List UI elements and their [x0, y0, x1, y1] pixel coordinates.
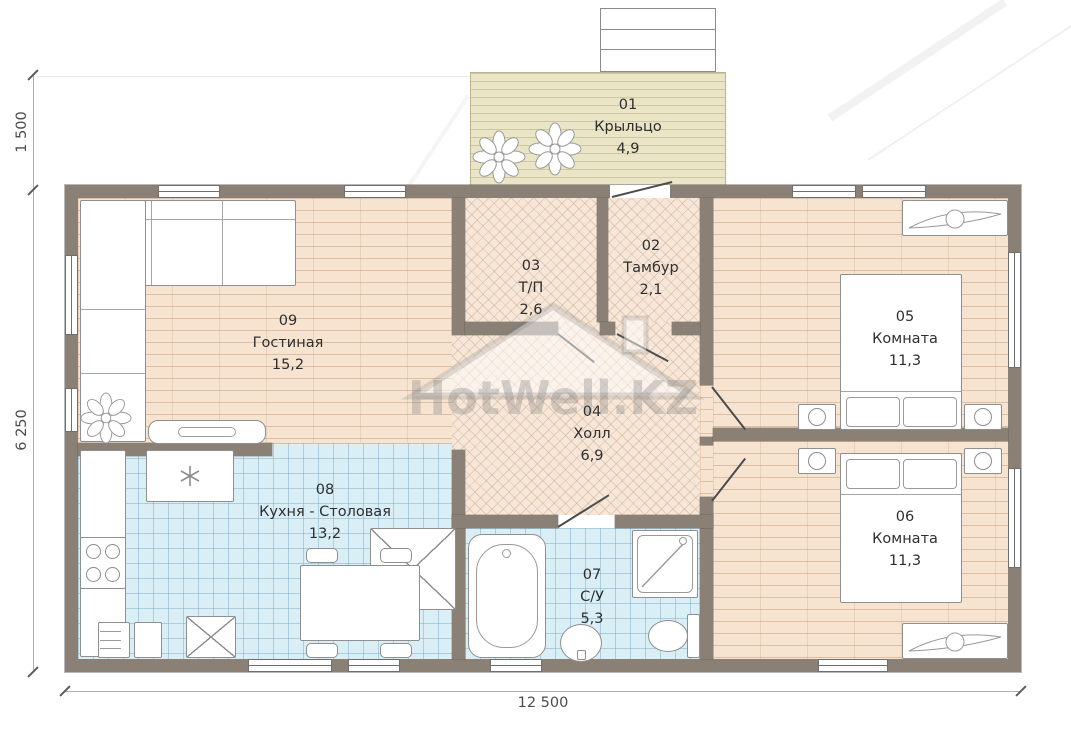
- window: [348, 659, 400, 672]
- stove: [80, 537, 126, 589]
- room-number: 04: [573, 401, 610, 423]
- room-name: Кухня - Столовая: [259, 501, 391, 523]
- window: [344, 185, 406, 198]
- chair: [306, 548, 338, 563]
- room-area: 11,3: [872, 550, 938, 572]
- kitchen-cabinet: [134, 622, 162, 658]
- dimension-label-12500: 12 500: [518, 695, 569, 711]
- room-area: 2,1: [623, 279, 678, 301]
- desk: [902, 623, 1008, 659]
- room-number: 02: [623, 235, 678, 257]
- window: [818, 659, 888, 672]
- room-area: 11,3: [872, 350, 938, 372]
- window: [158, 185, 220, 198]
- pillow: [903, 397, 957, 427]
- chair: [306, 643, 338, 658]
- decor-leaf-icon: [905, 627, 1005, 657]
- window: [248, 659, 332, 672]
- shower-diagonal: [633, 531, 696, 596]
- washbasin-tap: [577, 650, 586, 660]
- lamp-icon: [974, 408, 992, 426]
- dining-table: [300, 565, 420, 641]
- wall: [465, 322, 558, 335]
- blanket-fold: [841, 494, 961, 495]
- nightstand: [964, 404, 1002, 430]
- chair: [380, 643, 412, 658]
- room-area: 5,3: [580, 608, 604, 630]
- kitchen-drawers: [98, 622, 130, 658]
- room-area: 6,9: [573, 445, 610, 467]
- shower-cabin: [632, 530, 698, 598]
- desk: [902, 200, 1008, 236]
- room-label-bathroom: 07 С/У 5,3: [580, 564, 604, 630]
- room-area: 15,2: [253, 354, 324, 376]
- room-number: 09: [253, 310, 324, 332]
- room-area: 13,2: [259, 523, 391, 545]
- burner-icon: [105, 544, 120, 559]
- room-name: Тамбур: [623, 257, 678, 279]
- lamp-icon: [808, 452, 826, 470]
- bathtub-basin: [476, 544, 538, 648]
- room-number: 01: [594, 94, 662, 116]
- window: [862, 185, 926, 198]
- room-name: Комната: [872, 528, 938, 550]
- window: [65, 388, 78, 432]
- room-label-living: 09 Гостиная 15,2: [253, 310, 324, 376]
- burner-icon: [105, 567, 120, 582]
- wall: [700, 437, 713, 445]
- wall: [615, 515, 713, 528]
- wall: [672, 322, 700, 335]
- burner-icon: [86, 544, 101, 559]
- room-number: 08: [259, 479, 391, 501]
- kitchen-sink-counter: [146, 450, 234, 502]
- room-number: 06: [872, 506, 938, 528]
- wall: [597, 198, 608, 322]
- window: [65, 255, 78, 335]
- room-label-kitchen: 08 Кухня - Столовая 13,2: [259, 479, 391, 545]
- extension-line: [38, 76, 470, 77]
- door-threshold: [700, 385, 713, 437]
- chair: [380, 548, 412, 563]
- dishwasher: [186, 616, 236, 658]
- nightstand: [798, 404, 836, 430]
- lamp-icon: [974, 452, 992, 470]
- bathtub: [468, 534, 546, 658]
- room-name: С/У: [580, 586, 604, 608]
- nightstand: [964, 448, 1002, 474]
- room-name: Т/П: [519, 277, 544, 299]
- window: [490, 659, 542, 672]
- burner-icon: [86, 567, 101, 582]
- drain-icon: [502, 549, 511, 558]
- room-name: Гостиная: [253, 332, 324, 354]
- nightstand: [798, 448, 836, 474]
- wall: [452, 515, 558, 528]
- plant-icon: [80, 392, 132, 444]
- pillow: [846, 397, 900, 427]
- dimension-label-1500: 1 500: [14, 111, 30, 153]
- tv-console-detail: [178, 427, 236, 437]
- sink-icon: [179, 465, 201, 487]
- plant-icon: [472, 130, 526, 184]
- room-name: Холл: [573, 423, 610, 445]
- wall: [452, 198, 465, 335]
- pillow: [846, 459, 900, 489]
- floor-plan: HotWell.KZ 01 Крыльцо 4,9 02 Тамбур 2,1 …: [0, 0, 1071, 733]
- room-number: 03: [519, 255, 544, 277]
- dimension-label-6250: 6 250: [14, 409, 30, 451]
- room-label-utility: 03 Т/П 2,6: [519, 255, 544, 321]
- window: [792, 185, 856, 198]
- room-number: 05: [872, 306, 938, 328]
- door-threshold: [700, 445, 713, 497]
- entrance-steps: [600, 8, 716, 72]
- dimension-line-left: [33, 75, 34, 672]
- room-name: Крыльцо: [594, 116, 662, 138]
- pillow: [903, 459, 957, 489]
- room-label-bedroom-06: 06 Комната 11,3: [872, 506, 938, 572]
- room-area: 2,6: [519, 299, 544, 321]
- toilet: [648, 620, 688, 652]
- room-label-bedroom-05: 05 Комната 11,3: [872, 306, 938, 372]
- room-area: 4,9: [594, 138, 662, 160]
- room-label-vestibule: 02 Тамбур 2,1: [623, 235, 678, 301]
- window: [1008, 468, 1021, 568]
- lamp-icon: [808, 408, 826, 426]
- decor-leaf-icon: [905, 204, 1005, 234]
- dimension-line-bottom: [65, 691, 1021, 692]
- plant-icon: [528, 122, 582, 176]
- room-number: 07: [580, 564, 604, 586]
- wall: [700, 198, 713, 385]
- blanket-fold: [841, 391, 961, 392]
- toilet-tank: [687, 614, 700, 658]
- tv-console: [148, 420, 266, 444]
- wall: [600, 322, 615, 335]
- room-label-hall: 04 Холл 6,9: [573, 401, 610, 467]
- room-name: Комната: [872, 328, 938, 350]
- window: [1008, 252, 1021, 368]
- room-label-porch: 01 Крыльцо 4,9: [594, 94, 662, 160]
